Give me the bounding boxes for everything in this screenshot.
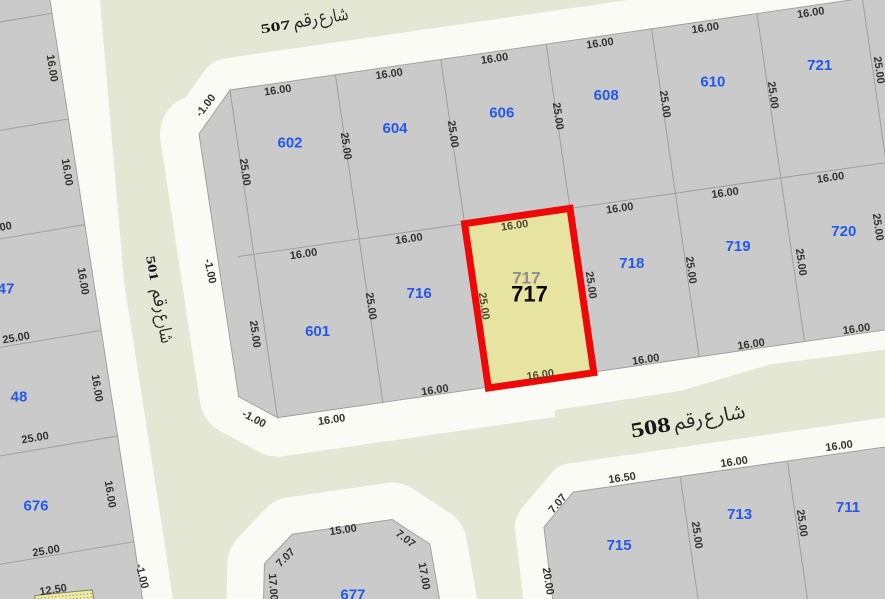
svg-text:713: 713 [727, 506, 752, 523]
svg-text:48: 48 [11, 389, 28, 406]
svg-text:47: 47 [0, 281, 14, 298]
svg-text:718: 718 [619, 255, 644, 272]
svg-text:717: 717 [511, 282, 548, 307]
svg-text:721: 721 [807, 57, 832, 74]
svg-text:677: 677 [340, 587, 365, 599]
svg-text:602: 602 [277, 135, 302, 152]
svg-text:715: 715 [607, 537, 632, 554]
svg-text:711: 711 [836, 499, 860, 516]
svg-text:720: 720 [831, 223, 856, 240]
svg-text:719: 719 [726, 238, 751, 255]
svg-text:604: 604 [382, 120, 408, 137]
svg-text:676: 676 [23, 498, 48, 515]
svg-text:17.00: 17.00 [266, 573, 280, 599]
svg-text:608: 608 [594, 87, 619, 104]
svg-text:606: 606 [489, 105, 514, 122]
svg-text:716: 716 [407, 285, 432, 302]
svg-text:601: 601 [305, 323, 330, 340]
svg-text:610: 610 [700, 74, 725, 91]
